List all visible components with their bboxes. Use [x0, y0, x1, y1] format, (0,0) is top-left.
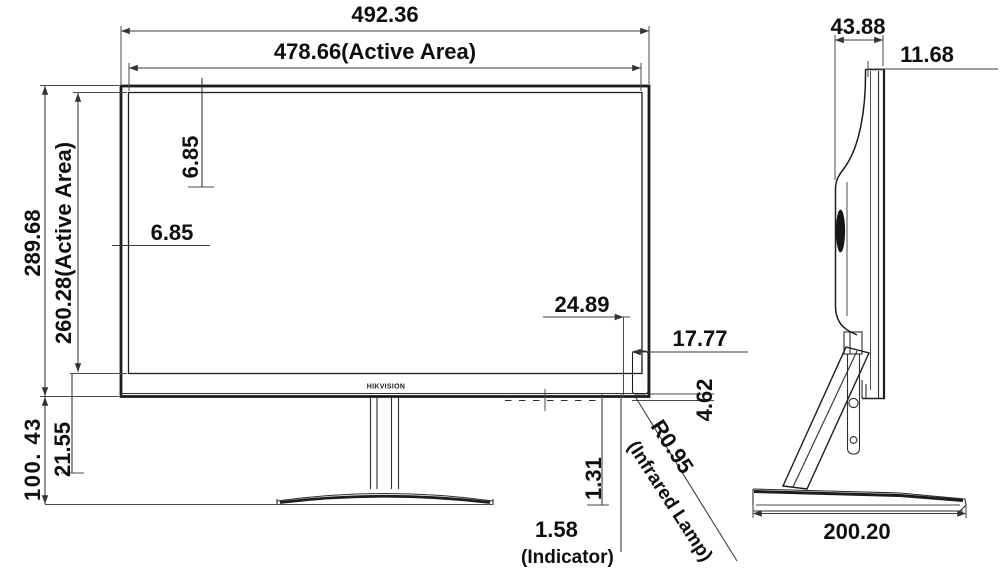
dim-top-thickness: 11.68 — [868, 42, 998, 77]
monitor-outline — [121, 86, 649, 397]
dim-chin-height: 21.55 — [50, 374, 84, 478]
dim-indicator-offset: 1.31 — [581, 399, 609, 505]
dimension-drawing-page: HIKVISION 492 — [0, 0, 1001, 585]
dim-indicator-note-label: (Indicator) — [521, 547, 614, 568]
panel-back-profile — [836, 70, 866, 335]
dim-lamp-offset-label: 24.89 — [554, 292, 609, 317]
hinge-screw — [850, 437, 857, 444]
joystick-button — [836, 210, 845, 253]
dim-chin-height-label: 21.55 — [50, 422, 75, 477]
brand-logo: HIKVISION — [367, 384, 405, 391]
dim-top-bezel-gap: 6.85 — [178, 78, 214, 187]
infrared-lamp-window — [633, 351, 649, 394]
dim-indicator-offset-label: 1.31 — [581, 457, 606, 500]
stand-base-side — [753, 489, 966, 511]
dim-top-thickness-label: 11.68 — [900, 42, 954, 67]
dim-depth: 43.88 — [830, 14, 885, 180]
dim-stand-height-label: 100. 43 — [20, 417, 45, 501]
dim-active-height: 260.28(Active Area) — [51, 93, 127, 374]
side-view — [753, 70, 966, 512]
hinge-screw — [849, 398, 858, 407]
dim-depth-label: 43.88 — [830, 14, 885, 39]
dim-active-height-label: 260.28(Active Area) — [51, 142, 76, 344]
dim-side-bezel-gap-label: 6.85 — [151, 220, 194, 245]
dim-overall-width-label: 492.36 — [351, 2, 418, 27]
dim-stand-height: 100. 43 — [20, 397, 45, 504]
dim-indicator-size: 1.58 (Indicator) — [521, 399, 621, 568]
side-dimensions: 43.88 11.68 200.20 — [753, 14, 998, 544]
dim-active-width-label: 478.66(Active Area) — [274, 39, 476, 64]
active-area-outline — [129, 93, 643, 374]
dim-overall-height-label: 289.68 — [20, 209, 45, 276]
control-buttons-dashed-line — [505, 389, 621, 411]
dim-base-depth-label: 200.20 — [823, 519, 890, 544]
dim-active-width: 478.66(Active Area) — [129, 39, 641, 91]
stand-neck — [371, 397, 399, 489]
dim-lamp-offset: 24.89 — [543, 292, 630, 398]
dim-top-bezel-gap-label: 6.85 — [178, 136, 203, 179]
dim-side-bezel-gap: 6.85 — [112, 220, 210, 246]
stand-base — [45, 494, 493, 506]
dim-lamp-height: 4.62 — [632, 379, 717, 422]
dim-lamp-height-label: 4.62 — [692, 379, 717, 422]
dim-lamp-radius-callout: R0.95 (Infrared Lamp) — [623, 398, 737, 566]
dim-lamp-width-label: 17.77 — [672, 326, 727, 351]
dimension-drawing: HIKVISION 492 — [0, 0, 1001, 585]
dim-indicator-size-label: 1.58 — [535, 517, 578, 542]
